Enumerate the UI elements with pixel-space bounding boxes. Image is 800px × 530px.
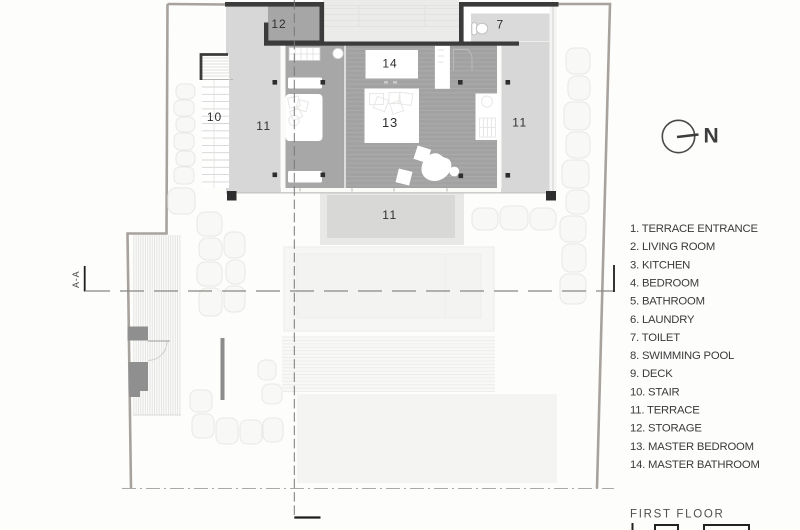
svg-text:11: 11: [256, 119, 271, 133]
svg-text:14. MASTER BATHROOM: 14. MASTER BATHROOM: [630, 459, 760, 471]
svg-text:A-A: A-A: [71, 271, 81, 288]
svg-text:12. STORAGE: 12. STORAGE: [630, 423, 702, 435]
svg-text:9. DECK: 9. DECK: [630, 368, 673, 380]
svg-text:13: 13: [382, 115, 398, 130]
svg-text:13. MASTER BEDROOM: 13. MASTER BEDROOM: [630, 441, 754, 453]
svg-text:6. LAUNDRY: 6. LAUNDRY: [630, 314, 695, 326]
svg-text:8. SWIMMING POOL: 8. SWIMMING POOL: [630, 350, 734, 362]
svg-text:3. KITCHEN: 3. KITCHEN: [630, 259, 690, 271]
svg-text:11. TERRACE: 11. TERRACE: [630, 405, 700, 417]
svg-text:N: N: [704, 125, 719, 148]
svg-text:5. BATHROOM: 5. BATHROOM: [630, 296, 705, 308]
svg-text:7: 7: [497, 18, 505, 32]
svg-text:12: 12: [271, 17, 286, 31]
svg-text:11: 11: [382, 208, 397, 222]
svg-text:4. BEDROOM: 4. BEDROOM: [630, 278, 699, 290]
svg-text:7. TOILET: 7. TOILET: [630, 332, 680, 344]
svg-text:1. TERRACE ENTRANCE: 1. TERRACE ENTRANCE: [630, 223, 758, 235]
svg-text:2. LIVING ROOM: 2. LIVING ROOM: [630, 241, 715, 253]
svg-text:10: 10: [207, 110, 222, 124]
svg-text:FIRST FLOOR: FIRST FLOOR: [630, 509, 725, 521]
svg-text:10. STAIR: 10. STAIR: [630, 386, 680, 398]
svg-text:14: 14: [382, 57, 397, 71]
svg-text:11: 11: [512, 116, 527, 130]
